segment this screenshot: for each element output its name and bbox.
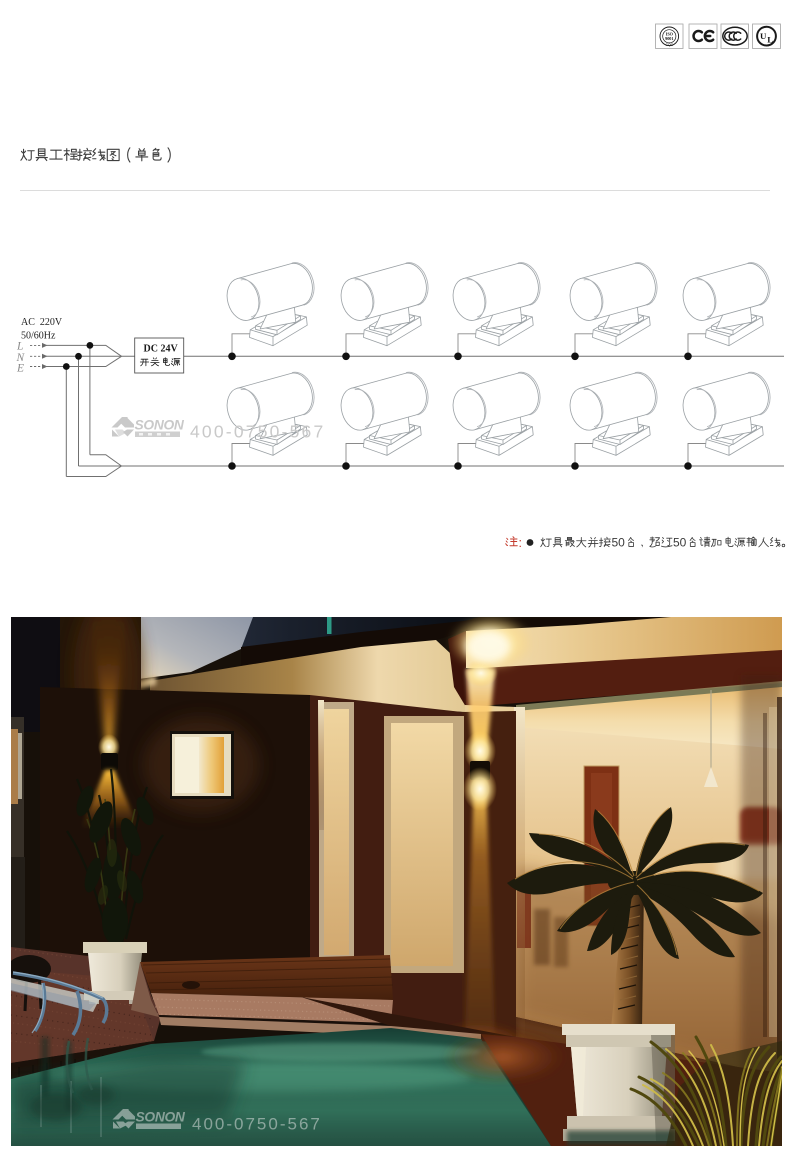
svg-text:CQC: CQC [666,43,674,47]
svg-text:L: L [16,341,23,353]
svg-text:AC 220V: AC 220V [21,317,63,328]
svg-text:9001: 9001 [665,36,673,41]
svg-text:50: 50 [673,536,687,550]
svg-text:400-0750-567: 400-0750-567 [190,422,325,442]
svg-text:DC 24V: DC 24V [144,344,179,355]
svg-text:SONON: SONON [136,1110,186,1125]
svg-text:50: 50 [612,536,626,550]
svg-text:L: L [767,35,773,45]
svg-text::: : [519,536,522,550]
svg-text:400-0750-567: 400-0750-567 [192,1115,322,1134]
svg-text:E: E [16,363,24,375]
svg-text:SONON: SONON [135,418,185,433]
svg-text:U: U [760,31,767,41]
svg-text:50/60Hz: 50/60Hz [21,331,56,342]
